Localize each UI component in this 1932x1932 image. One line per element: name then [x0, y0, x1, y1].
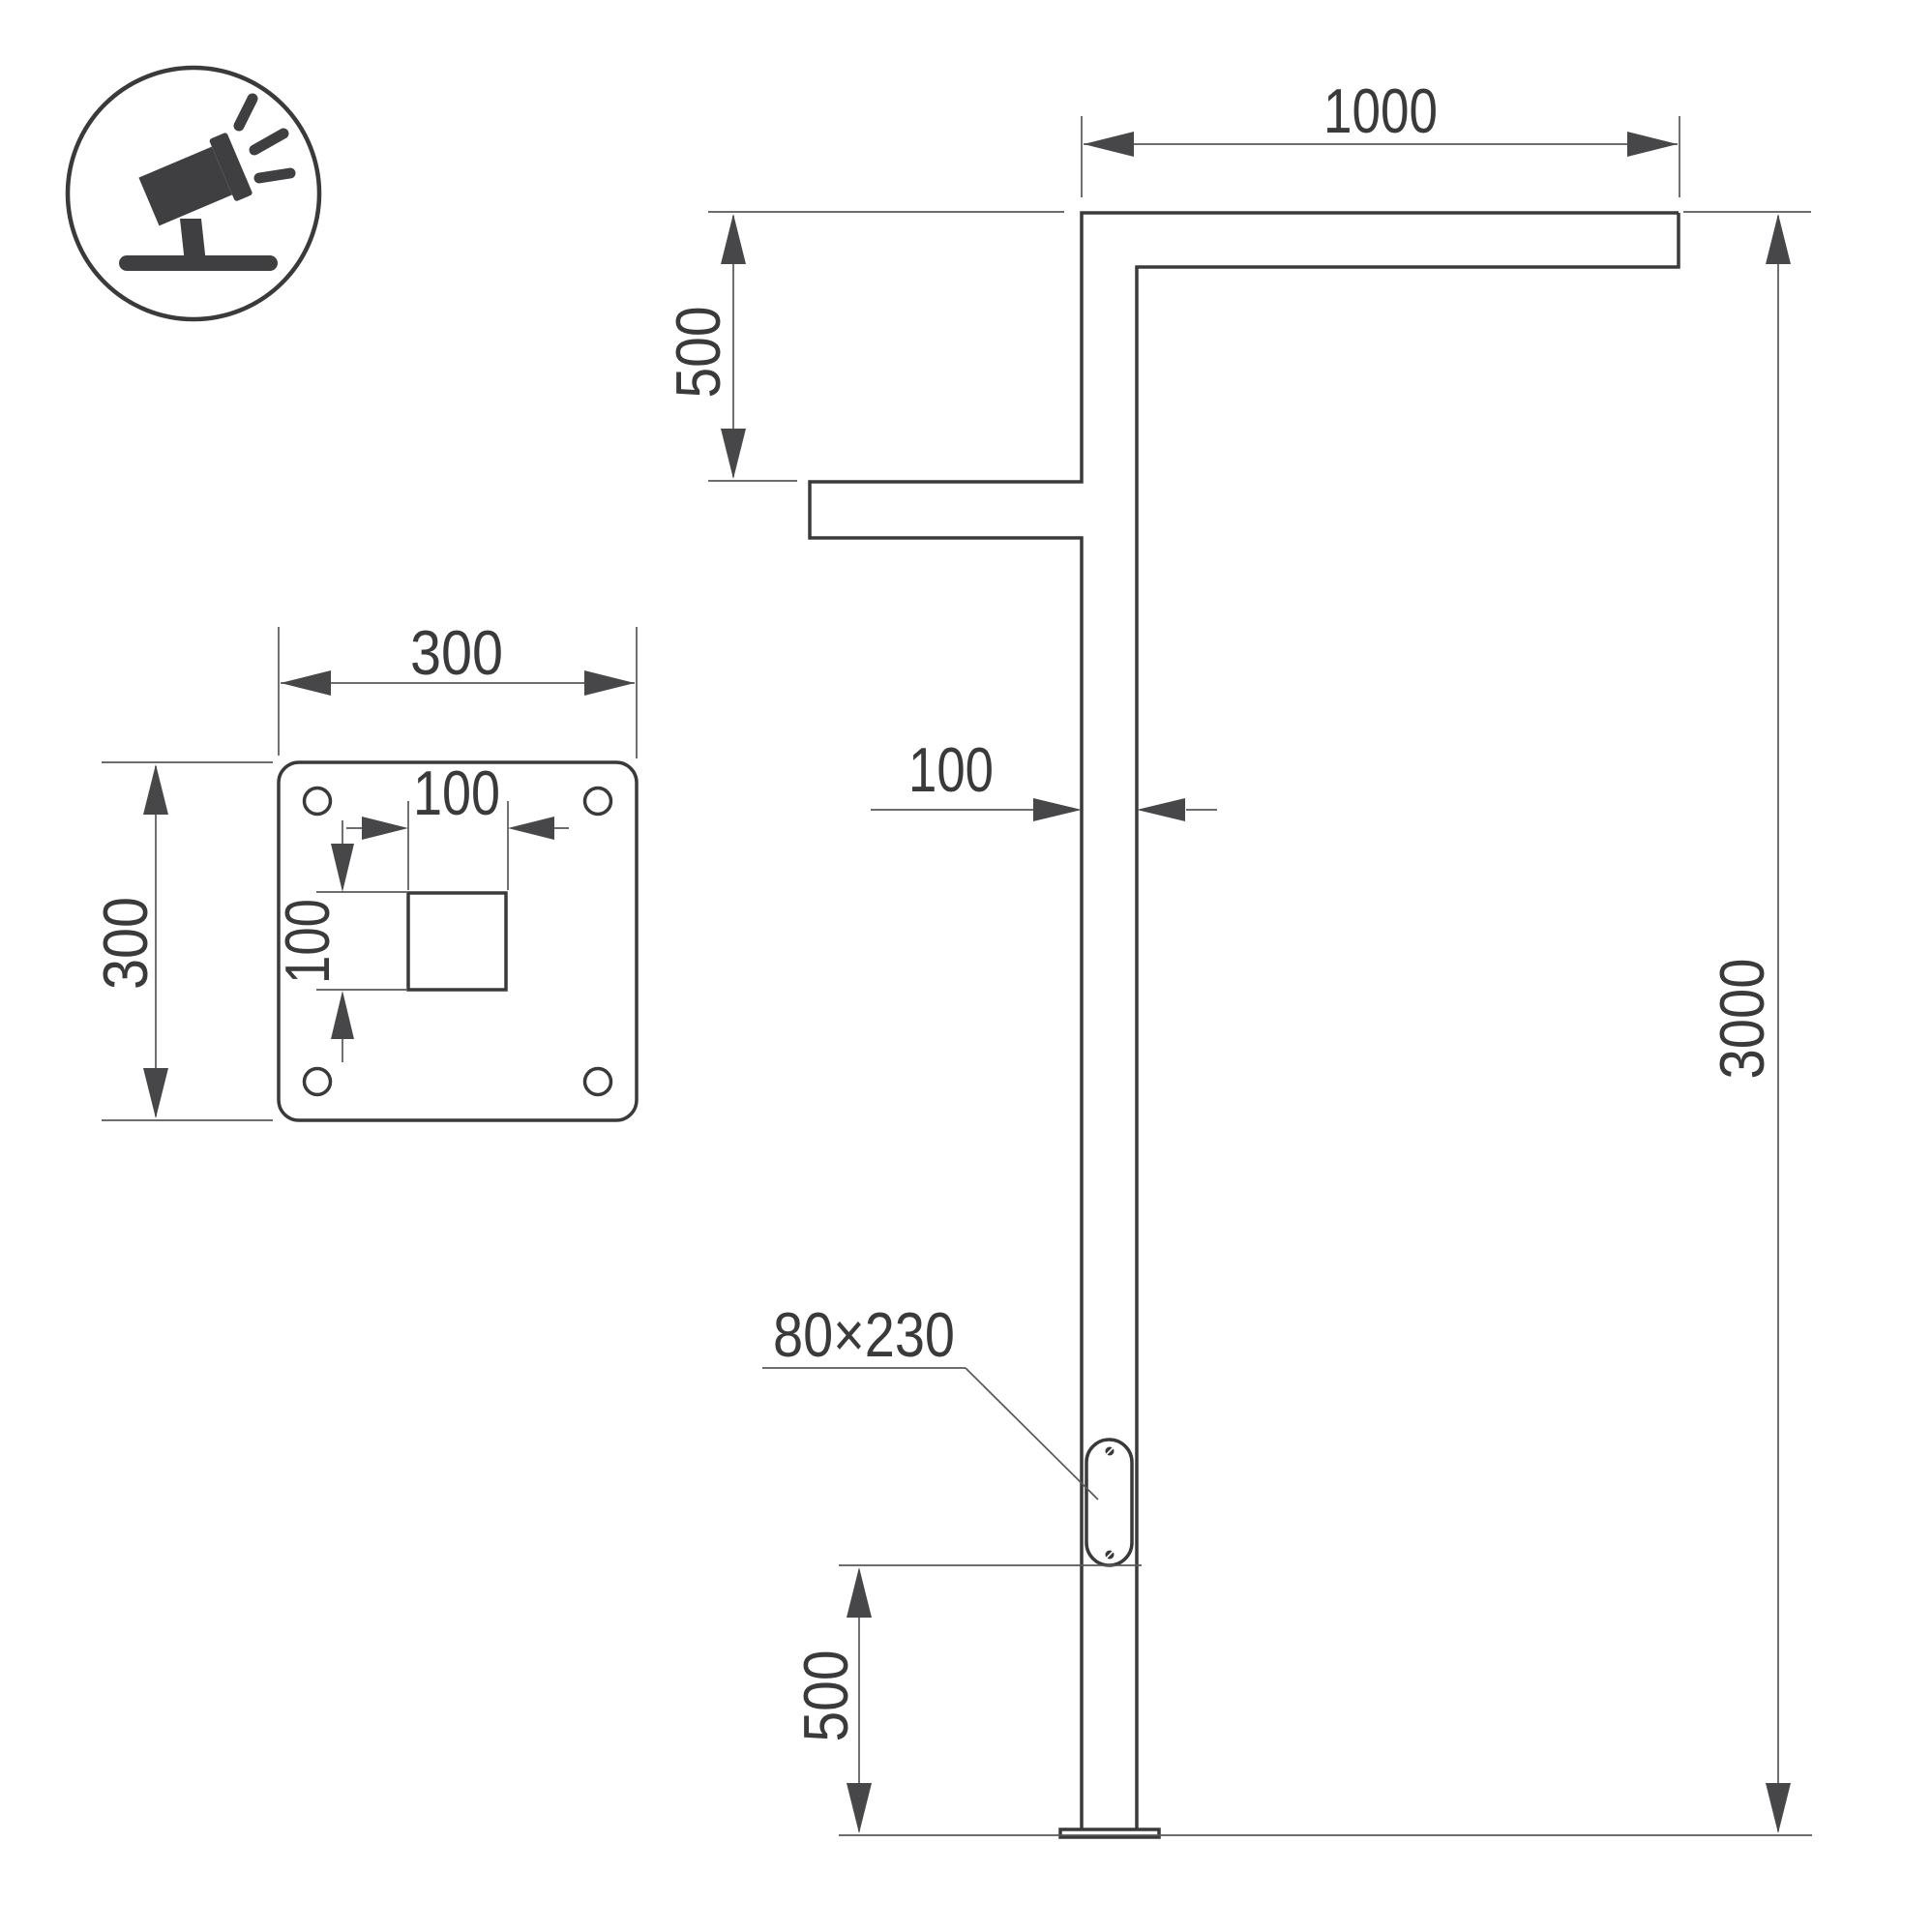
dimension-arm-length: 1000 [1082, 75, 1679, 197]
bolt-hole-bottom-left [305, 1069, 331, 1095]
dim-label-hole-width: 100 [413, 758, 500, 828]
dim-label-hole-height: 100 [272, 899, 342, 984]
light-ray-icon [259, 173, 290, 178]
dimension-pole-height: 3000 [839, 212, 1812, 1835]
light-ray-icon [254, 134, 283, 150]
floodlight-head-icon [135, 132, 253, 232]
service-door-callout: 80×230 [762, 1299, 1098, 1500]
dim-label-door-height: 500 [790, 1650, 861, 1742]
leader-line [966, 1368, 1098, 1500]
dim-label-plate-width: 300 [410, 617, 503, 688]
technical-drawing-page: 300 300 100 100 [0, 0, 1932, 1932]
dimension-plate-width: 300 [279, 617, 637, 758]
dim-label-arm-spacing: 500 [663, 307, 733, 399]
dim-label-pole-height: 3000 [1707, 959, 1777, 1080]
light-ray-icon [239, 99, 253, 126]
dim-label-arm-length: 1000 [1323, 75, 1438, 146]
dimension-door-height: 500 [790, 1565, 1142, 1833]
pole-side-view [810, 213, 1679, 1837]
dimension-hole-width: 100 [346, 758, 569, 890]
pole-outline-right [1137, 213, 1679, 1829]
dimensions: 300 300 100 100 [90, 75, 1812, 1835]
service-door [1086, 1440, 1132, 1565]
bolt-hole-top-right [585, 788, 611, 815]
pole-outline-left [810, 213, 1679, 1829]
technical-drawing-canvas: 300 300 100 100 [0, 0, 1932, 1932]
dimension-arm-spacing: 500 [663, 212, 1064, 481]
floodlight-icon [68, 68, 319, 319]
dim-label-pole-width: 100 [908, 734, 994, 805]
door-screw-bottom [1106, 1551, 1115, 1560]
door-screw-top [1106, 1447, 1115, 1456]
dim-label-service-door-size: 80×230 [773, 1299, 955, 1370]
dim-label-plate-height: 300 [90, 897, 161, 990]
center-square-hole [408, 893, 506, 990]
dimension-hole-height: 100 [272, 820, 406, 1062]
bolt-hole-bottom-right [585, 1069, 611, 1095]
bolt-hole-top-left [305, 788, 331, 815]
dimension-plate-height: 300 [90, 762, 273, 1120]
dimension-pole-width: 100 [871, 734, 1217, 821]
floodlight-base-icon [119, 255, 278, 271]
